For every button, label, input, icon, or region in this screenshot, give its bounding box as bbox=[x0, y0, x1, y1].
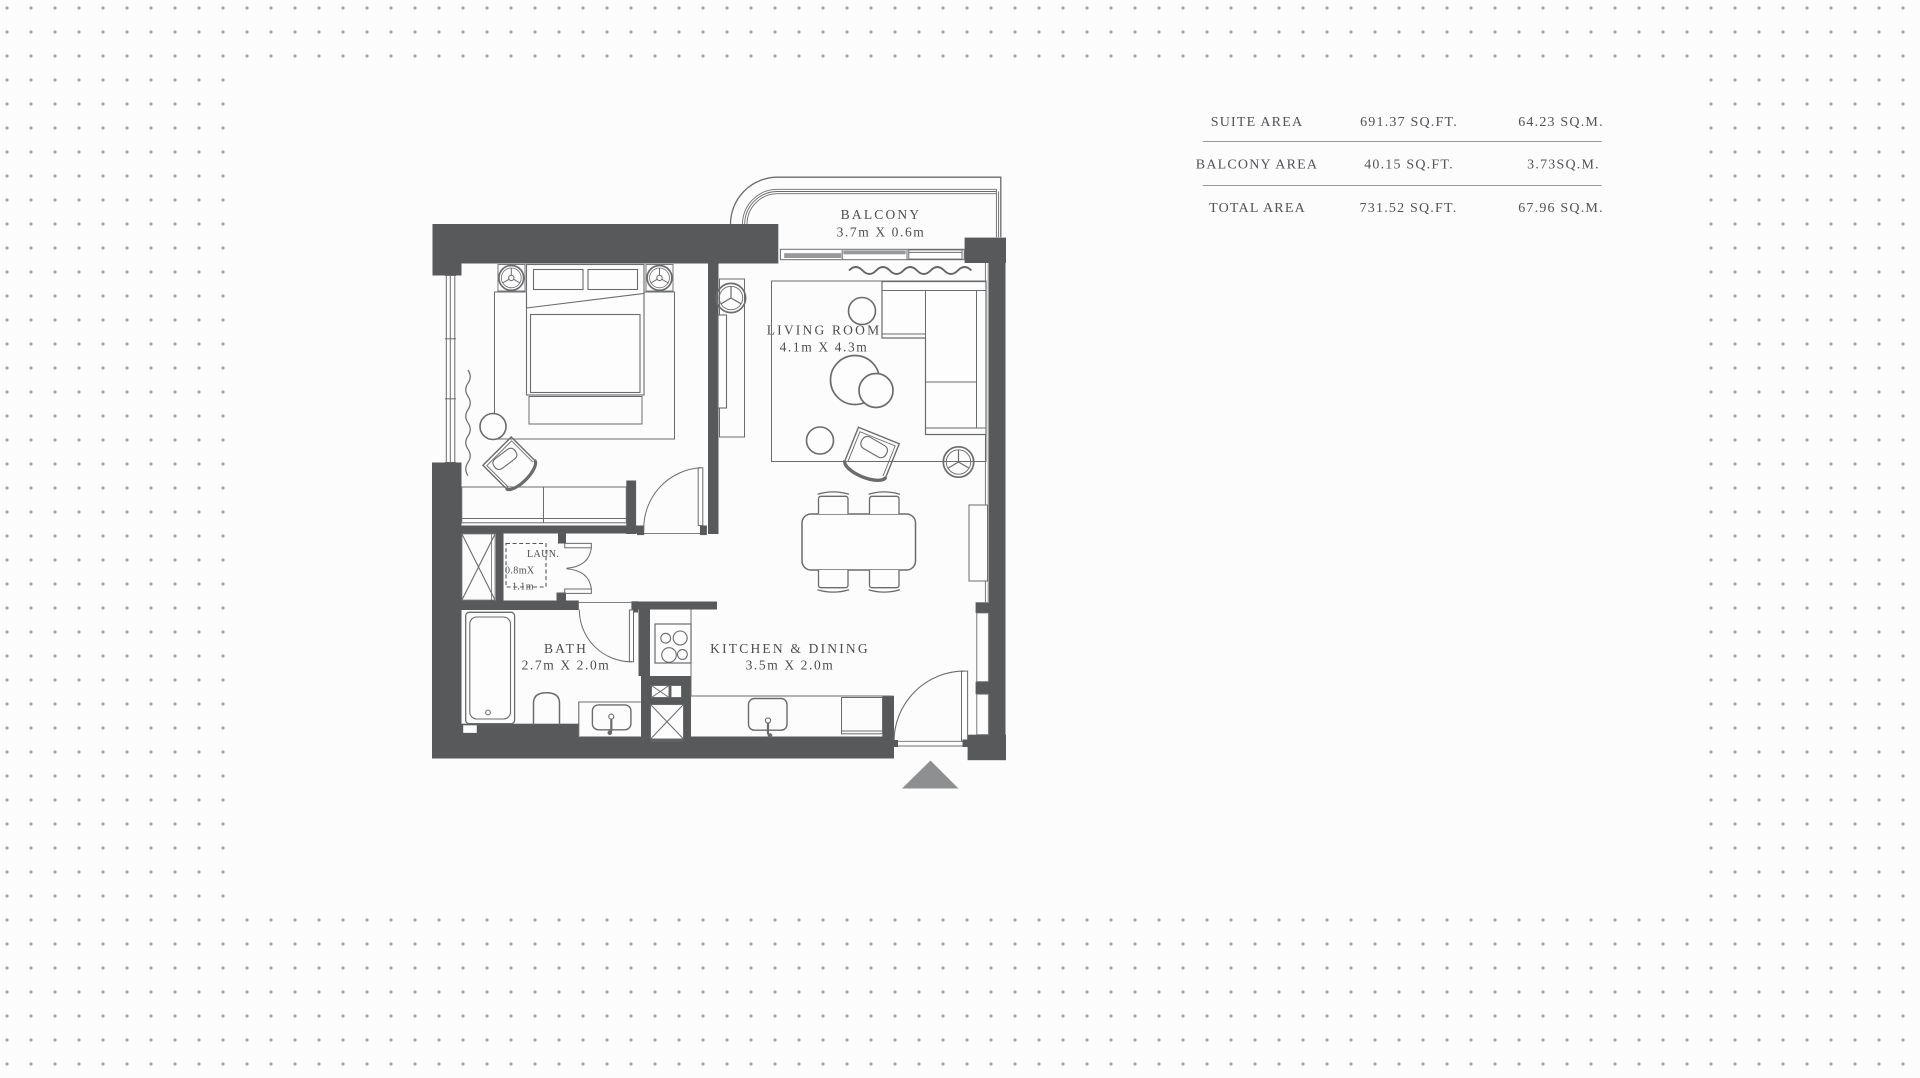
svg-text:4.1m X 4.3m: 4.1m X 4.3m bbox=[780, 340, 869, 355]
svg-text:67.96 SQ.M.: 67.96 SQ.M. bbox=[1518, 201, 1604, 216]
svg-text:731.52 SQ.FT.: 731.52 SQ.FT. bbox=[1360, 201, 1458, 216]
svg-text:SUITE AREA: SUITE AREA bbox=[1211, 115, 1304, 130]
svg-text:BATH: BATH bbox=[544, 641, 588, 656]
svg-text:3.73SQ.M.: 3.73SQ.M. bbox=[1527, 158, 1600, 173]
svg-text:64.23 SQ.M.: 64.23 SQ.M. bbox=[1518, 115, 1604, 130]
svg-text:BALCONY AREA: BALCONY AREA bbox=[1196, 158, 1318, 173]
svg-text:TOTAL AREA: TOTAL AREA bbox=[1209, 201, 1306, 216]
svg-text:LAUN.: LAUN. bbox=[527, 549, 559, 560]
svg-text:691.37 SQ.FT.: 691.37 SQ.FT. bbox=[1360, 115, 1458, 130]
svg-text:BALCONY: BALCONY bbox=[841, 207, 922, 222]
svg-text:2.7m X 2.0m: 2.7m X 2.0m bbox=[522, 658, 611, 673]
svg-text:3.5m X 2.0m: 3.5m X 2.0m bbox=[746, 658, 835, 673]
svg-text:1.1m: 1.1m bbox=[512, 582, 534, 593]
svg-text:40.15 SQ.FT.: 40.15 SQ.FT. bbox=[1364, 158, 1454, 173]
svg-text:3.7m X 0.6m: 3.7m X 0.6m bbox=[837, 225, 926, 240]
svg-text:0.8mX: 0.8mX bbox=[505, 566, 535, 577]
svg-text:KITCHEN & DINING: KITCHEN & DINING bbox=[710, 641, 870, 656]
